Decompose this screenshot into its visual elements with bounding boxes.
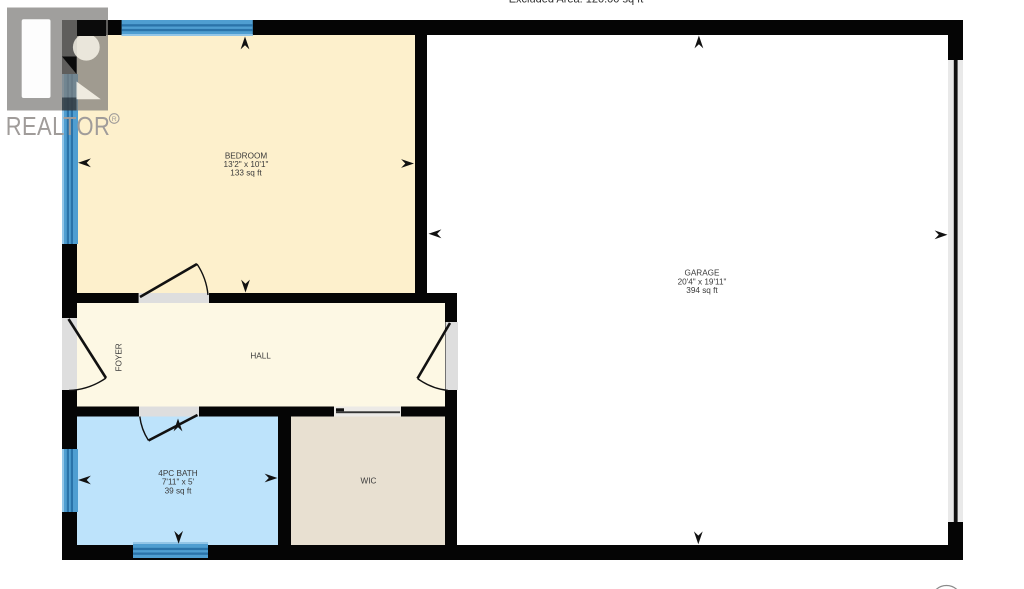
svg-text:R: R — [112, 116, 117, 123]
svg-text:Excluded Area: 120.00 sq ft: Excluded Area: 120.00 sq ft — [509, 0, 644, 6]
svg-text:394 sq ft: 394 sq ft — [686, 286, 718, 295]
svg-text:20'4" x 19'11": 20'4" x 19'11" — [678, 277, 727, 286]
svg-text:REALTOR: REALTOR — [6, 112, 111, 141]
svg-text:39 sq ft: 39 sq ft — [165, 486, 193, 495]
svg-text:7'11" x 5': 7'11" x 5' — [162, 478, 195, 487]
svg-text:133 sq ft: 133 sq ft — [230, 168, 262, 177]
svg-text:HALL: HALL — [250, 352, 271, 361]
svg-text:FOYER: FOYER — [115, 343, 124, 371]
svg-text:BEDROOM: BEDROOM — [225, 151, 267, 160]
svg-text:GARAGE: GARAGE — [684, 269, 720, 278]
svg-text:WIC: WIC — [361, 477, 377, 486]
